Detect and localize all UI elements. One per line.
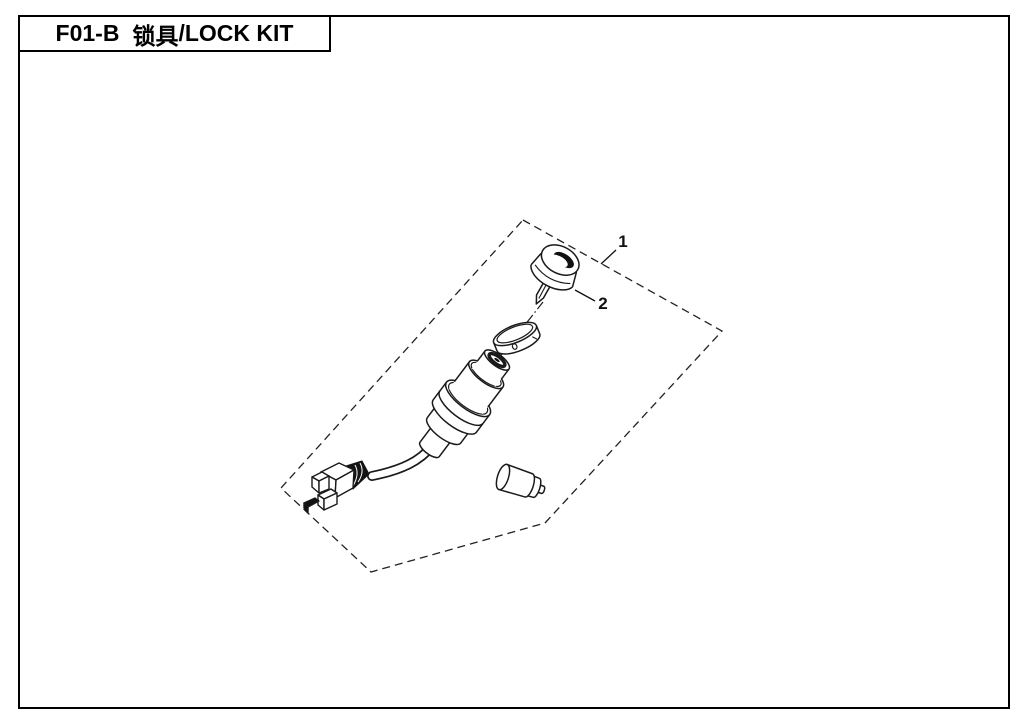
parts-catalog-page: F01-B锁具/LOCK KIT (0, 0, 1025, 724)
kit-boundary-outline (281, 220, 722, 572)
ignition-switch-body-drawing (405, 339, 522, 469)
wire-connector-drawing (304, 463, 354, 513)
callout-1[interactable]: 1 (601, 232, 628, 264)
callout-1-label[interactable]: 1 (618, 232, 627, 251)
callout-2-label[interactable]: 2 (598, 294, 607, 313)
callout-1-leader-line (601, 250, 616, 264)
lock-collar-ring-drawing (490, 318, 542, 359)
callout-2[interactable]: 2 (575, 290, 608, 313)
ignition-key-knob-drawing (516, 237, 587, 315)
callout-2-leader-line (575, 290, 595, 301)
exploded-view-drawing: 1 2 (0, 0, 1025, 724)
spare-barrel-drawing (494, 463, 549, 503)
